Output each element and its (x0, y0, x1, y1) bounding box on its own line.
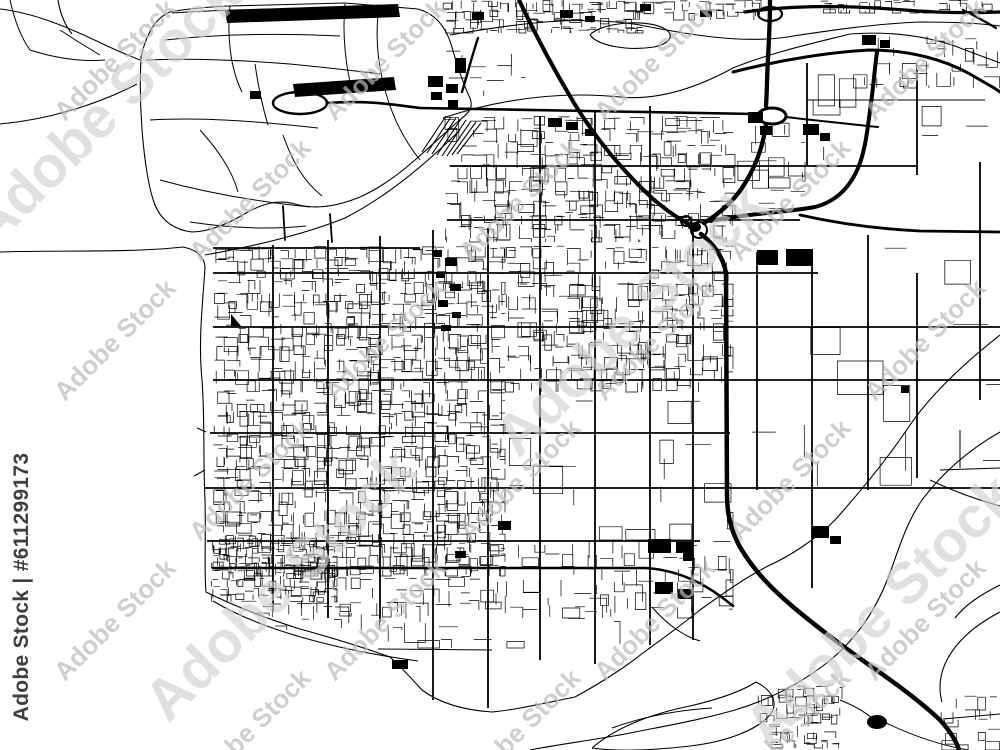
shoreline-path (0, 84, 137, 124)
residential-street-texture (241, 576, 502, 616)
runway-building-fill (225, 4, 400, 23)
highway-path (701, 234, 959, 750)
minor-road-path (943, 714, 1000, 719)
collector-road (283, 206, 285, 240)
shoreline-path (940, 612, 1000, 702)
diagonal-street-hatch (422, 116, 481, 156)
residential-street-texture (813, 75, 856, 160)
city-road-map (0, 0, 1000, 750)
shoreline-path (213, 601, 418, 661)
residential-street-texture (922, 106, 988, 135)
shoreline-path (590, 23, 670, 49)
minor-road-path (200, 130, 238, 192)
residential-street-texture (510, 401, 734, 540)
stock-photo-canvas: Adobe StockAdobe StockAdobe StockAdobe S… (0, 0, 1000, 750)
collector-road (786, 117, 878, 127)
interchange-fill (867, 715, 887, 729)
residential-street-texture (213, 246, 505, 576)
minor-road-path (194, 470, 205, 476)
minor-road-path (146, 59, 380, 74)
shoreline-path (955, 585, 1000, 618)
minor-road-path (190, 222, 306, 228)
collector-road (330, 214, 332, 242)
collector-road (745, 7, 1000, 13)
minor-road-path (283, 135, 322, 196)
interchange-ring-layer (273, 7, 786, 238)
minor-road-path (378, 649, 492, 650)
residential-street-texture (941, 696, 1000, 750)
watermark-id-label: Adobe Stock | #611299173 (10, 453, 34, 722)
minor-road-path (150, 119, 318, 128)
minor-road-layer (10, 0, 1000, 750)
minor-road-path (840, 700, 872, 718)
collector-road (800, 215, 1000, 232)
minor-road-path (165, 34, 340, 40)
minor-road-path (612, 708, 712, 728)
shoreline-path (205, 130, 460, 255)
shoreline-layer (0, 0, 1000, 750)
runway-building-fill (231, 314, 241, 326)
residential-street-texture (388, 618, 620, 648)
shoreline-path (530, 432, 1000, 750)
hatch-street-layer (422, 116, 481, 156)
shoreline-path (592, 682, 774, 750)
residential-street-texture (752, 248, 1000, 486)
collector-road (327, 102, 420, 108)
minor-road-path (10, 0, 105, 61)
shoreline-path (0, 247, 1000, 712)
minor-road-path (930, 480, 1000, 506)
runway-building-fill (293, 77, 396, 97)
minor-road-path (197, 428, 206, 432)
collector-road (420, 108, 755, 114)
highway-path (766, 0, 770, 106)
residential-street-texture (758, 686, 842, 748)
residential-street-texture (446, 51, 525, 96)
